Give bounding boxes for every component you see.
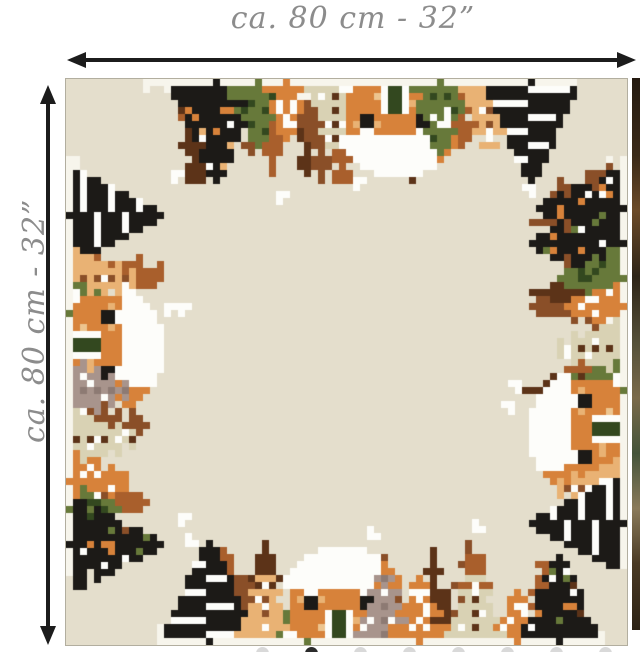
next-image-preview[interactable]: [632, 78, 640, 630]
carousel-dot[interactable]: [354, 647, 367, 652]
tablecloth-image[interactable]: [65, 78, 628, 646]
height-arrow: [40, 85, 56, 645]
carousel-dots: [0, 647, 640, 652]
carousel-dot[interactable]: [256, 647, 269, 652]
carousel-dot[interactable]: [550, 647, 563, 652]
product-gallery-slide: ca. 80 cm - 32” ca. 80 cm - 32”: [0, 0, 640, 652]
carousel-dot[interactable]: [501, 647, 514, 652]
tablecloth-artwork: [66, 79, 627, 645]
carousel-dot[interactable]: [305, 647, 318, 652]
carousel-dot[interactable]: [403, 647, 416, 652]
carousel-dot[interactable]: [599, 647, 612, 652]
carousel-dot[interactable]: [452, 647, 465, 652]
width-arrow: [67, 52, 636, 68]
